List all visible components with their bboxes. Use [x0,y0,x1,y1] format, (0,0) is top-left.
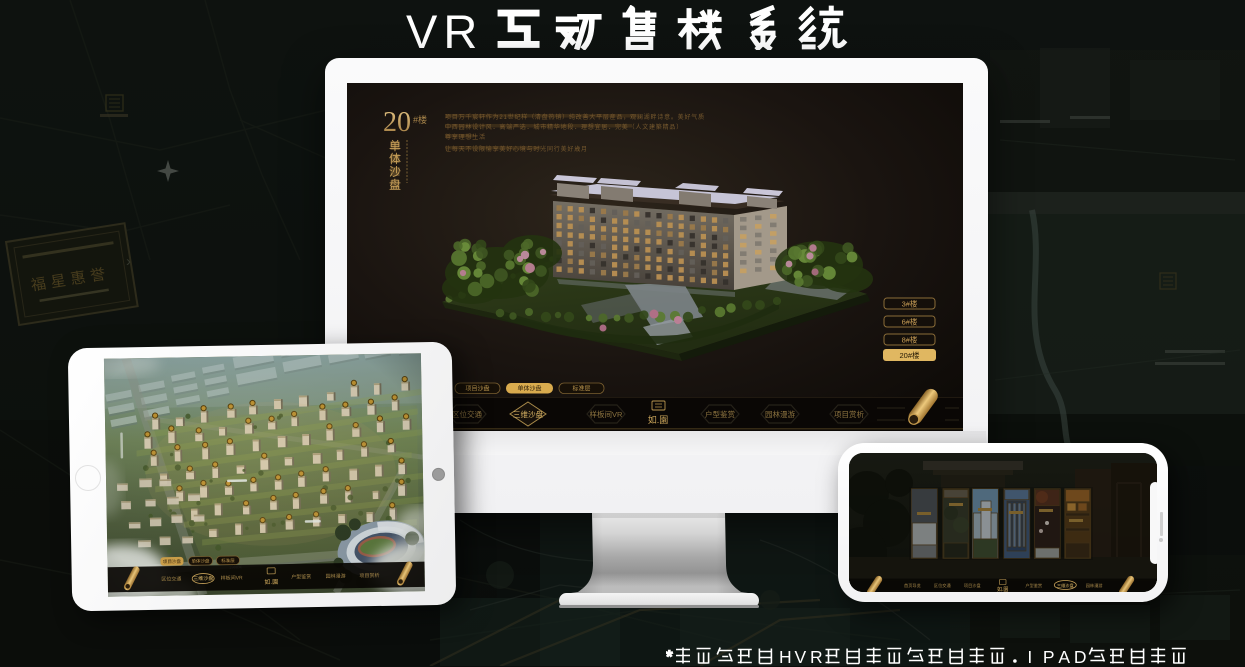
svg-text:标准层: 标准层 [572,385,590,393]
svg-text:如.園: 如.園 [648,414,669,425]
svg-text:A: A [1058,647,1070,667]
svg-text:盘: 盘 [389,177,401,192]
svg-text:项目沙盘: 项目沙盘 [964,582,981,589]
svg-text:户型鉴赏: 户型鉴赏 [705,409,735,419]
svg-text:#楼: #楼 [413,114,427,125]
svg-text:园林漫游: 园林漫游 [765,409,795,419]
svg-text:区位交通: 区位交通 [934,582,952,589]
svg-text:尊享理想生活: 尊享理想生活 [445,133,486,141]
svg-text:R: R [810,647,823,667]
svg-text:H: H [779,647,792,667]
svg-text:沙: 沙 [389,165,401,179]
svg-text:区位交通: 区位交通 [452,409,482,419]
svg-text:户型鉴赏: 户型鉴赏 [291,573,311,580]
svg-text:三维沙盘: 三维沙盘 [193,575,213,582]
svg-text:户型鉴赏: 户型鉴赏 [1025,582,1042,589]
svg-text:区位交通: 区位交通 [161,575,181,582]
svg-text:单体沙盘: 单体沙盘 [517,385,541,393]
svg-text:项目万千宸轩作为21世纪样（清盘热销）纯改善大平层産品，观澜: 项目万千宸轩作为21世纪样（清盘热销）纯改善大平层産品，观澜湖畔诗意。美好气质 [445,113,705,121]
svg-text:如.園: 如.園 [264,578,278,586]
svg-text:让每天不设限愉享美好心境与时光同行美好歳月: 让每天不设限愉享美好心境与时光同行美好歳月 [445,145,588,153]
svg-text:6#楼: 6#楼 [902,317,918,327]
svg-text:8#楼: 8#楼 [902,335,918,345]
svg-text:中西园林设计风．高端严选．城市精华地段．理想宜居．完美（人文: 中西园林设计风．高端严选．城市精华地段．理想宜居．完美（人文建築精品） [445,123,683,131]
svg-text:如.園: 如.園 [997,586,1008,592]
svg-text:样板间VR: 样板间VR [590,409,624,419]
svg-text:园林漫游: 园林漫游 [326,573,346,580]
svg-text:项目赏析: 项目赏析 [834,409,864,419]
svg-text:*: * [666,647,673,666]
svg-text:体: 体 [389,152,401,166]
svg-text:三维沙盘: 三维沙盘 [513,409,543,419]
svg-text:项目沙盘: 项目沙盘 [465,385,489,393]
svg-text:20: 20 [383,107,411,138]
svg-text:›: › [126,253,131,270]
svg-text:20#楼: 20#楼 [899,350,920,360]
svg-text:首页导览: 首页导览 [904,582,921,589]
svg-text:项目赏析: 项目赏析 [359,572,379,579]
svg-text:3#楼: 3#楼 [902,299,918,309]
svg-text:V: V [795,647,807,667]
svg-text:园林漫游: 园林漫游 [1086,582,1104,589]
svg-text:I: I [1027,647,1032,667]
svg-text:P: P [1043,647,1055,667]
svg-text:单: 单 [389,139,401,153]
svg-text:样板间VR: 样板间VR [221,574,243,581]
svg-text:三维沙盘: 三维沙盘 [1057,582,1074,589]
svg-text:D: D [1074,647,1087,667]
